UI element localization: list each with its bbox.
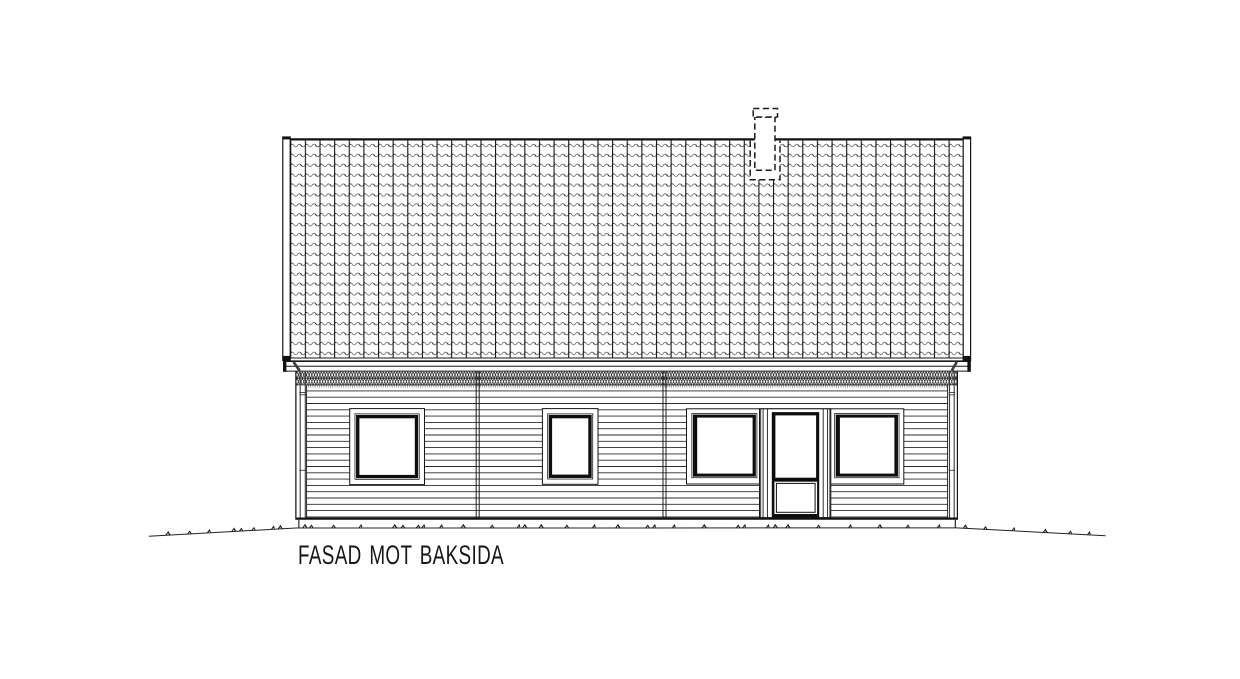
svg-text:FASAD MOT BAKSIDA: FASAD MOT BAKSIDA (298, 540, 504, 570)
